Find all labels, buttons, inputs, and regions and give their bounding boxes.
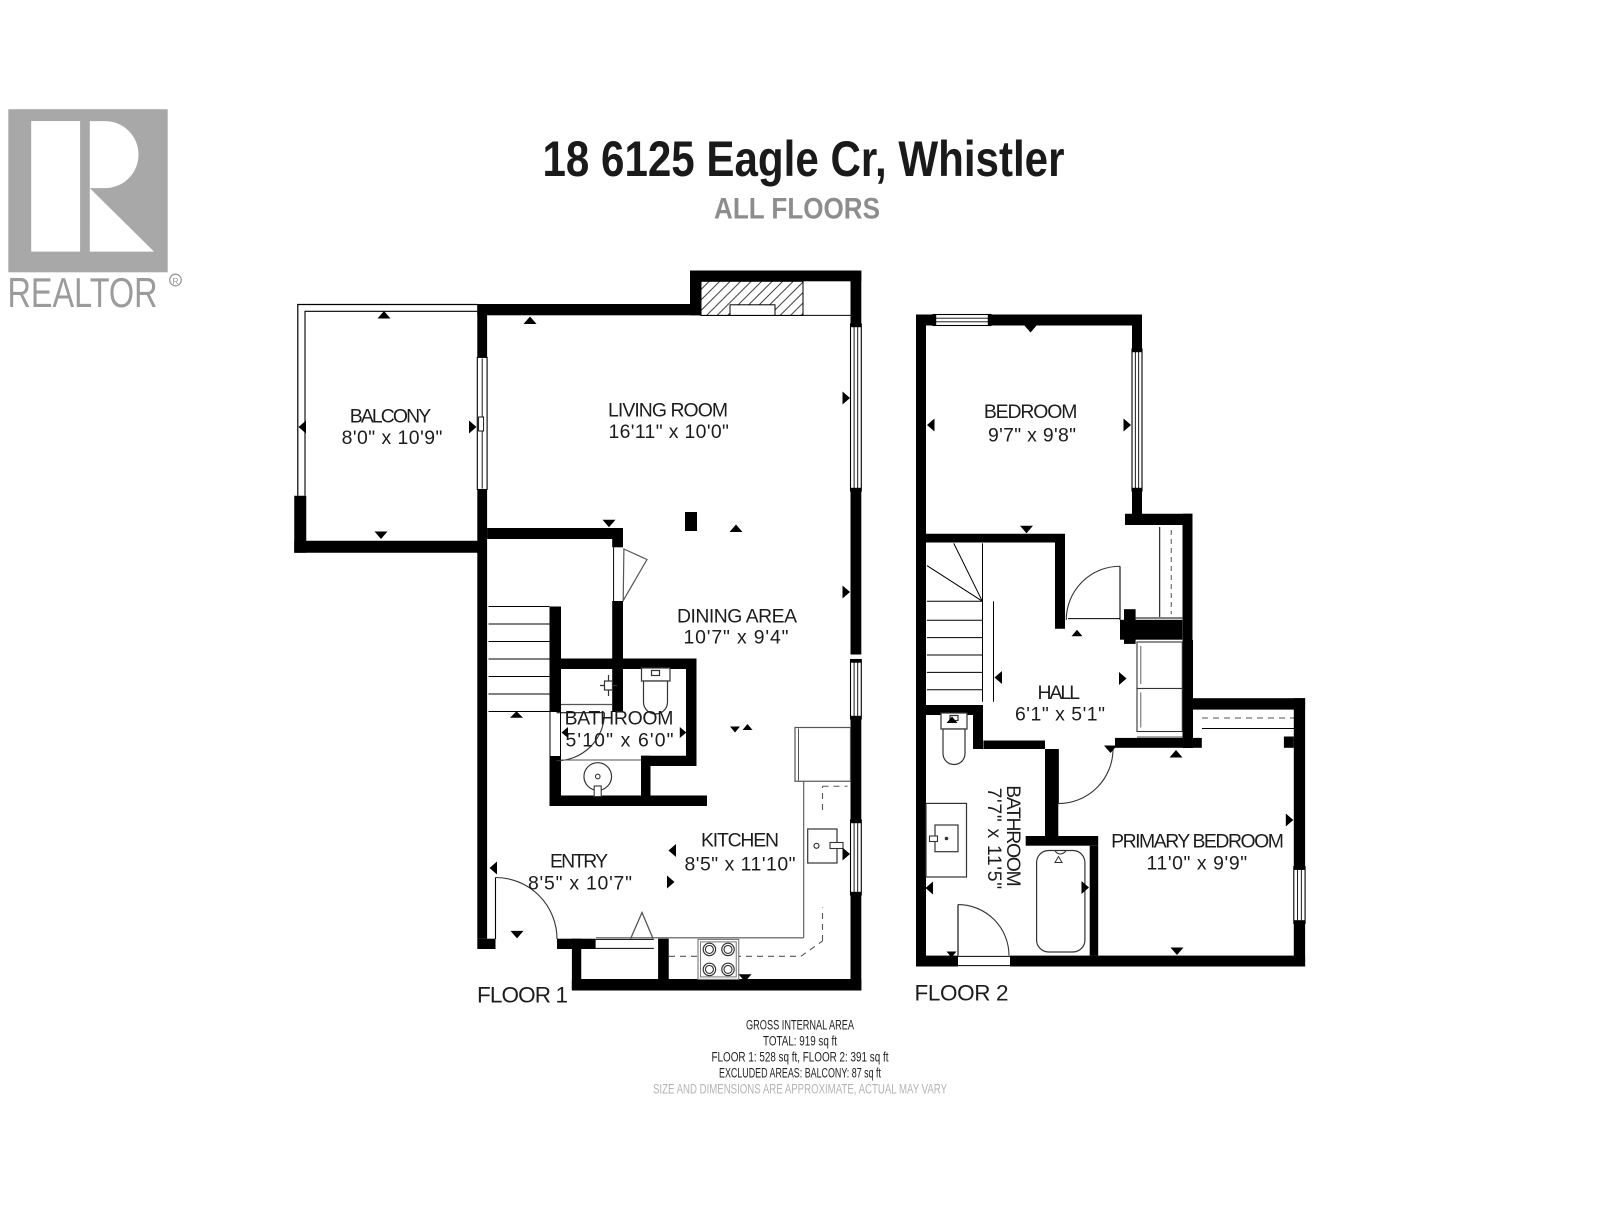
svg-text:BATHROOM: BATHROOM (565, 708, 674, 730)
svg-text:8'5" x 11'10": 8'5" x 11'10" (685, 854, 796, 876)
svg-text:10'7" x 9'4": 10'7" x 9'4" (684, 627, 789, 649)
svg-text:PRIMARY BEDROOM: PRIMARY BEDROOM (1111, 830, 1284, 852)
svg-text:6'1" x 5'1": 6'1" x 5'1" (1015, 704, 1105, 726)
svg-text:GROSS INTERNAL AREA: GROSS INTERNAL AREA (746, 1018, 854, 1033)
svg-text:KITCHEN: KITCHEN (701, 830, 779, 852)
svg-text:BEDROOM: BEDROOM (984, 401, 1078, 423)
svg-text:DINING AREA: DINING AREA (677, 606, 797, 628)
svg-text:LIVING ROOM: LIVING ROOM (608, 400, 728, 422)
svg-text:ALL FLOORS: ALL FLOORS (714, 193, 880, 226)
svg-text:16'11" x 10'0": 16'11" x 10'0" (608, 421, 729, 443)
svg-text:8'5" x 10'7": 8'5" x 10'7" (528, 873, 632, 895)
svg-text:SIZE AND DIMENSIONS ARE APPROX: SIZE AND DIMENSIONS ARE APPROXIMATE, ACT… (653, 1082, 947, 1097)
svg-text:11'0" x 9'9": 11'0" x 9'9" (1147, 853, 1248, 875)
svg-text:TOTAL: 919 sq ft: TOTAL: 919 sq ft (763, 1034, 837, 1049)
svg-text:7'7" x 11'5": 7'7" x 11'5" (983, 788, 1005, 890)
svg-text:ENTRY: ENTRY (550, 851, 608, 873)
svg-text:HALL: HALL (1038, 682, 1081, 704)
svg-text:18 6125 Eagle Cr, Whistler: 18 6125 Eagle Cr, Whistler (543, 131, 1065, 187)
svg-text:FLOOR 2: FLOOR 2 (915, 981, 1009, 1006)
svg-text:9'7" x 9'8": 9'7" x 9'8" (988, 425, 1076, 447)
svg-text:FLOOR 1: FLOOR 1 (477, 983, 568, 1008)
svg-text:8'0" x 10'9": 8'0" x 10'9" (342, 427, 443, 449)
svg-text:EXCLUDED AREAS: BALCONY: 87 sq: EXCLUDED AREAS: BALCONY: 87 sq ft (719, 1066, 881, 1081)
svg-text:REALTOR: REALTOR (8, 269, 158, 316)
svg-text:BALCONY: BALCONY (350, 406, 431, 428)
svg-text:R: R (172, 276, 178, 286)
svg-text:FLOOR 1: 528 sq ft, FLOOR 2: 3: FLOOR 1: 528 sq ft, FLOOR 2: 391 sq ft (712, 1050, 889, 1065)
